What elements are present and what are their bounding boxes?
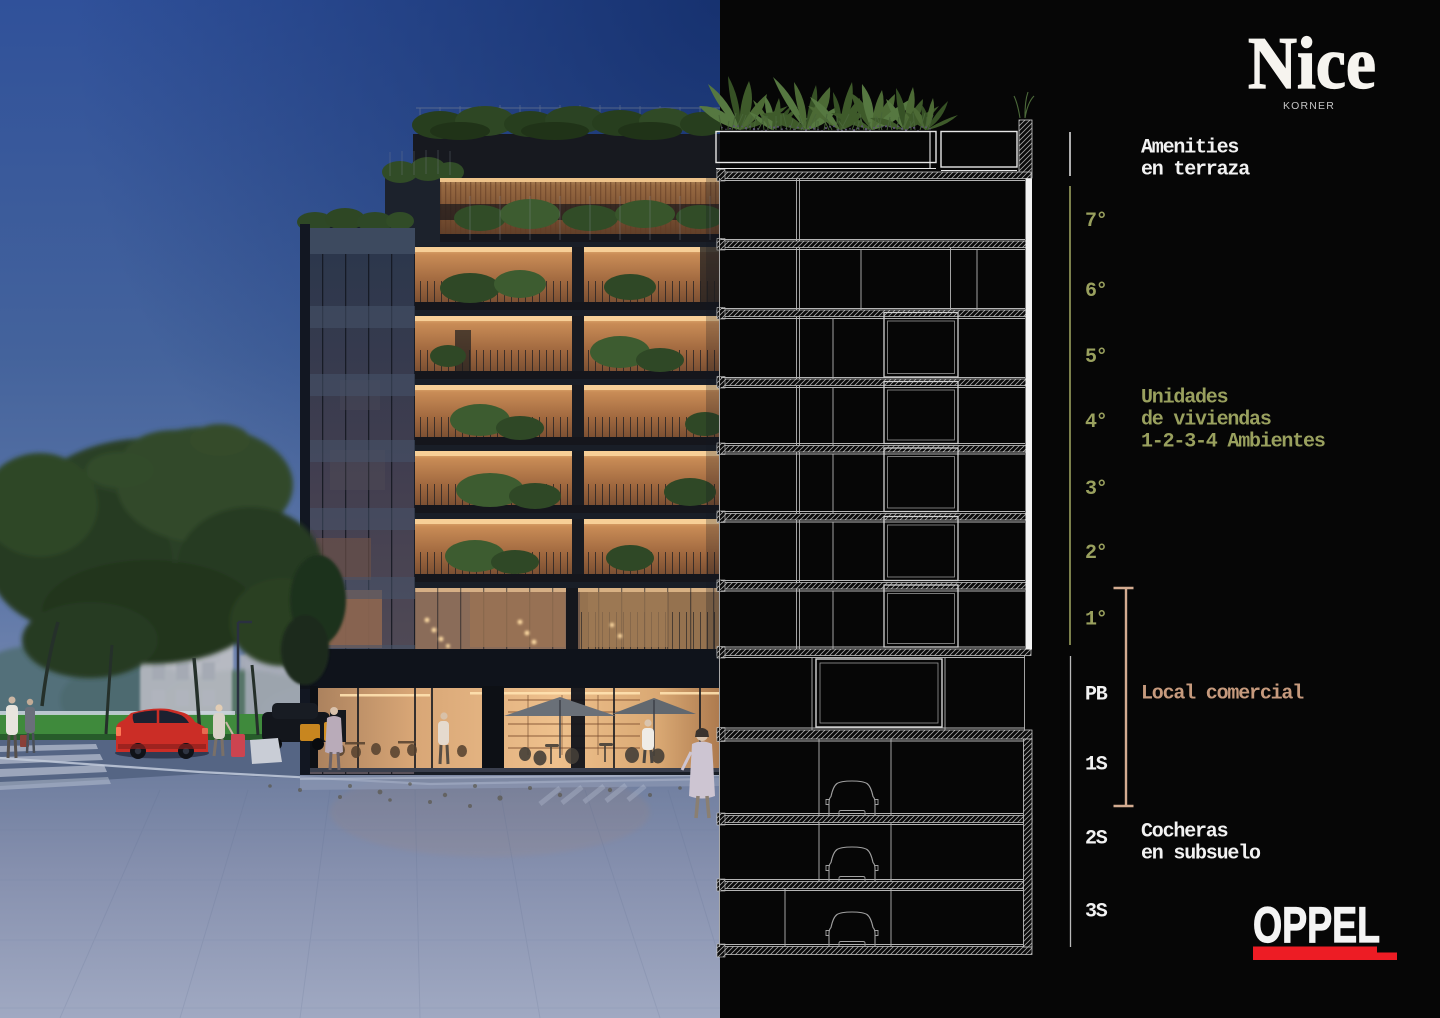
svg-text:4°: 4° [1085,411,1107,434]
svg-text:Local comercial: Local comercial [1141,683,1304,706]
svg-text:1S: 1S [1085,754,1108,777]
svg-text:6°: 6° [1085,280,1107,303]
svg-text:Nice: Nice [1248,23,1376,105]
svg-text:3°: 3° [1085,478,1107,501]
svg-text:1°: 1° [1085,609,1107,632]
svg-text:en subsuelo: en subsuelo [1141,843,1261,866]
svg-text:en terraza: en terraza [1141,159,1250,182]
svg-text:Amenities: Amenities [1141,137,1238,160]
svg-text:1-2-3-4 Ambientes: 1-2-3-4 Ambientes [1141,431,1325,454]
svg-text:2S: 2S [1085,828,1108,851]
svg-text:Cocheras: Cocheras [1141,821,1228,844]
svg-text:OPPEL: OPPEL [1253,897,1380,953]
svg-text:2°: 2° [1085,542,1107,565]
svg-text:KORNER: KORNER [1283,100,1337,112]
svg-text:5°: 5° [1085,346,1107,369]
svg-text:PB: PB [1085,684,1108,707]
svg-text:Unidades: Unidades [1141,387,1228,410]
svg-text:7°: 7° [1085,210,1107,233]
svg-text:3S: 3S [1085,901,1108,924]
svg-text:de viviendas: de viviendas [1141,409,1271,432]
